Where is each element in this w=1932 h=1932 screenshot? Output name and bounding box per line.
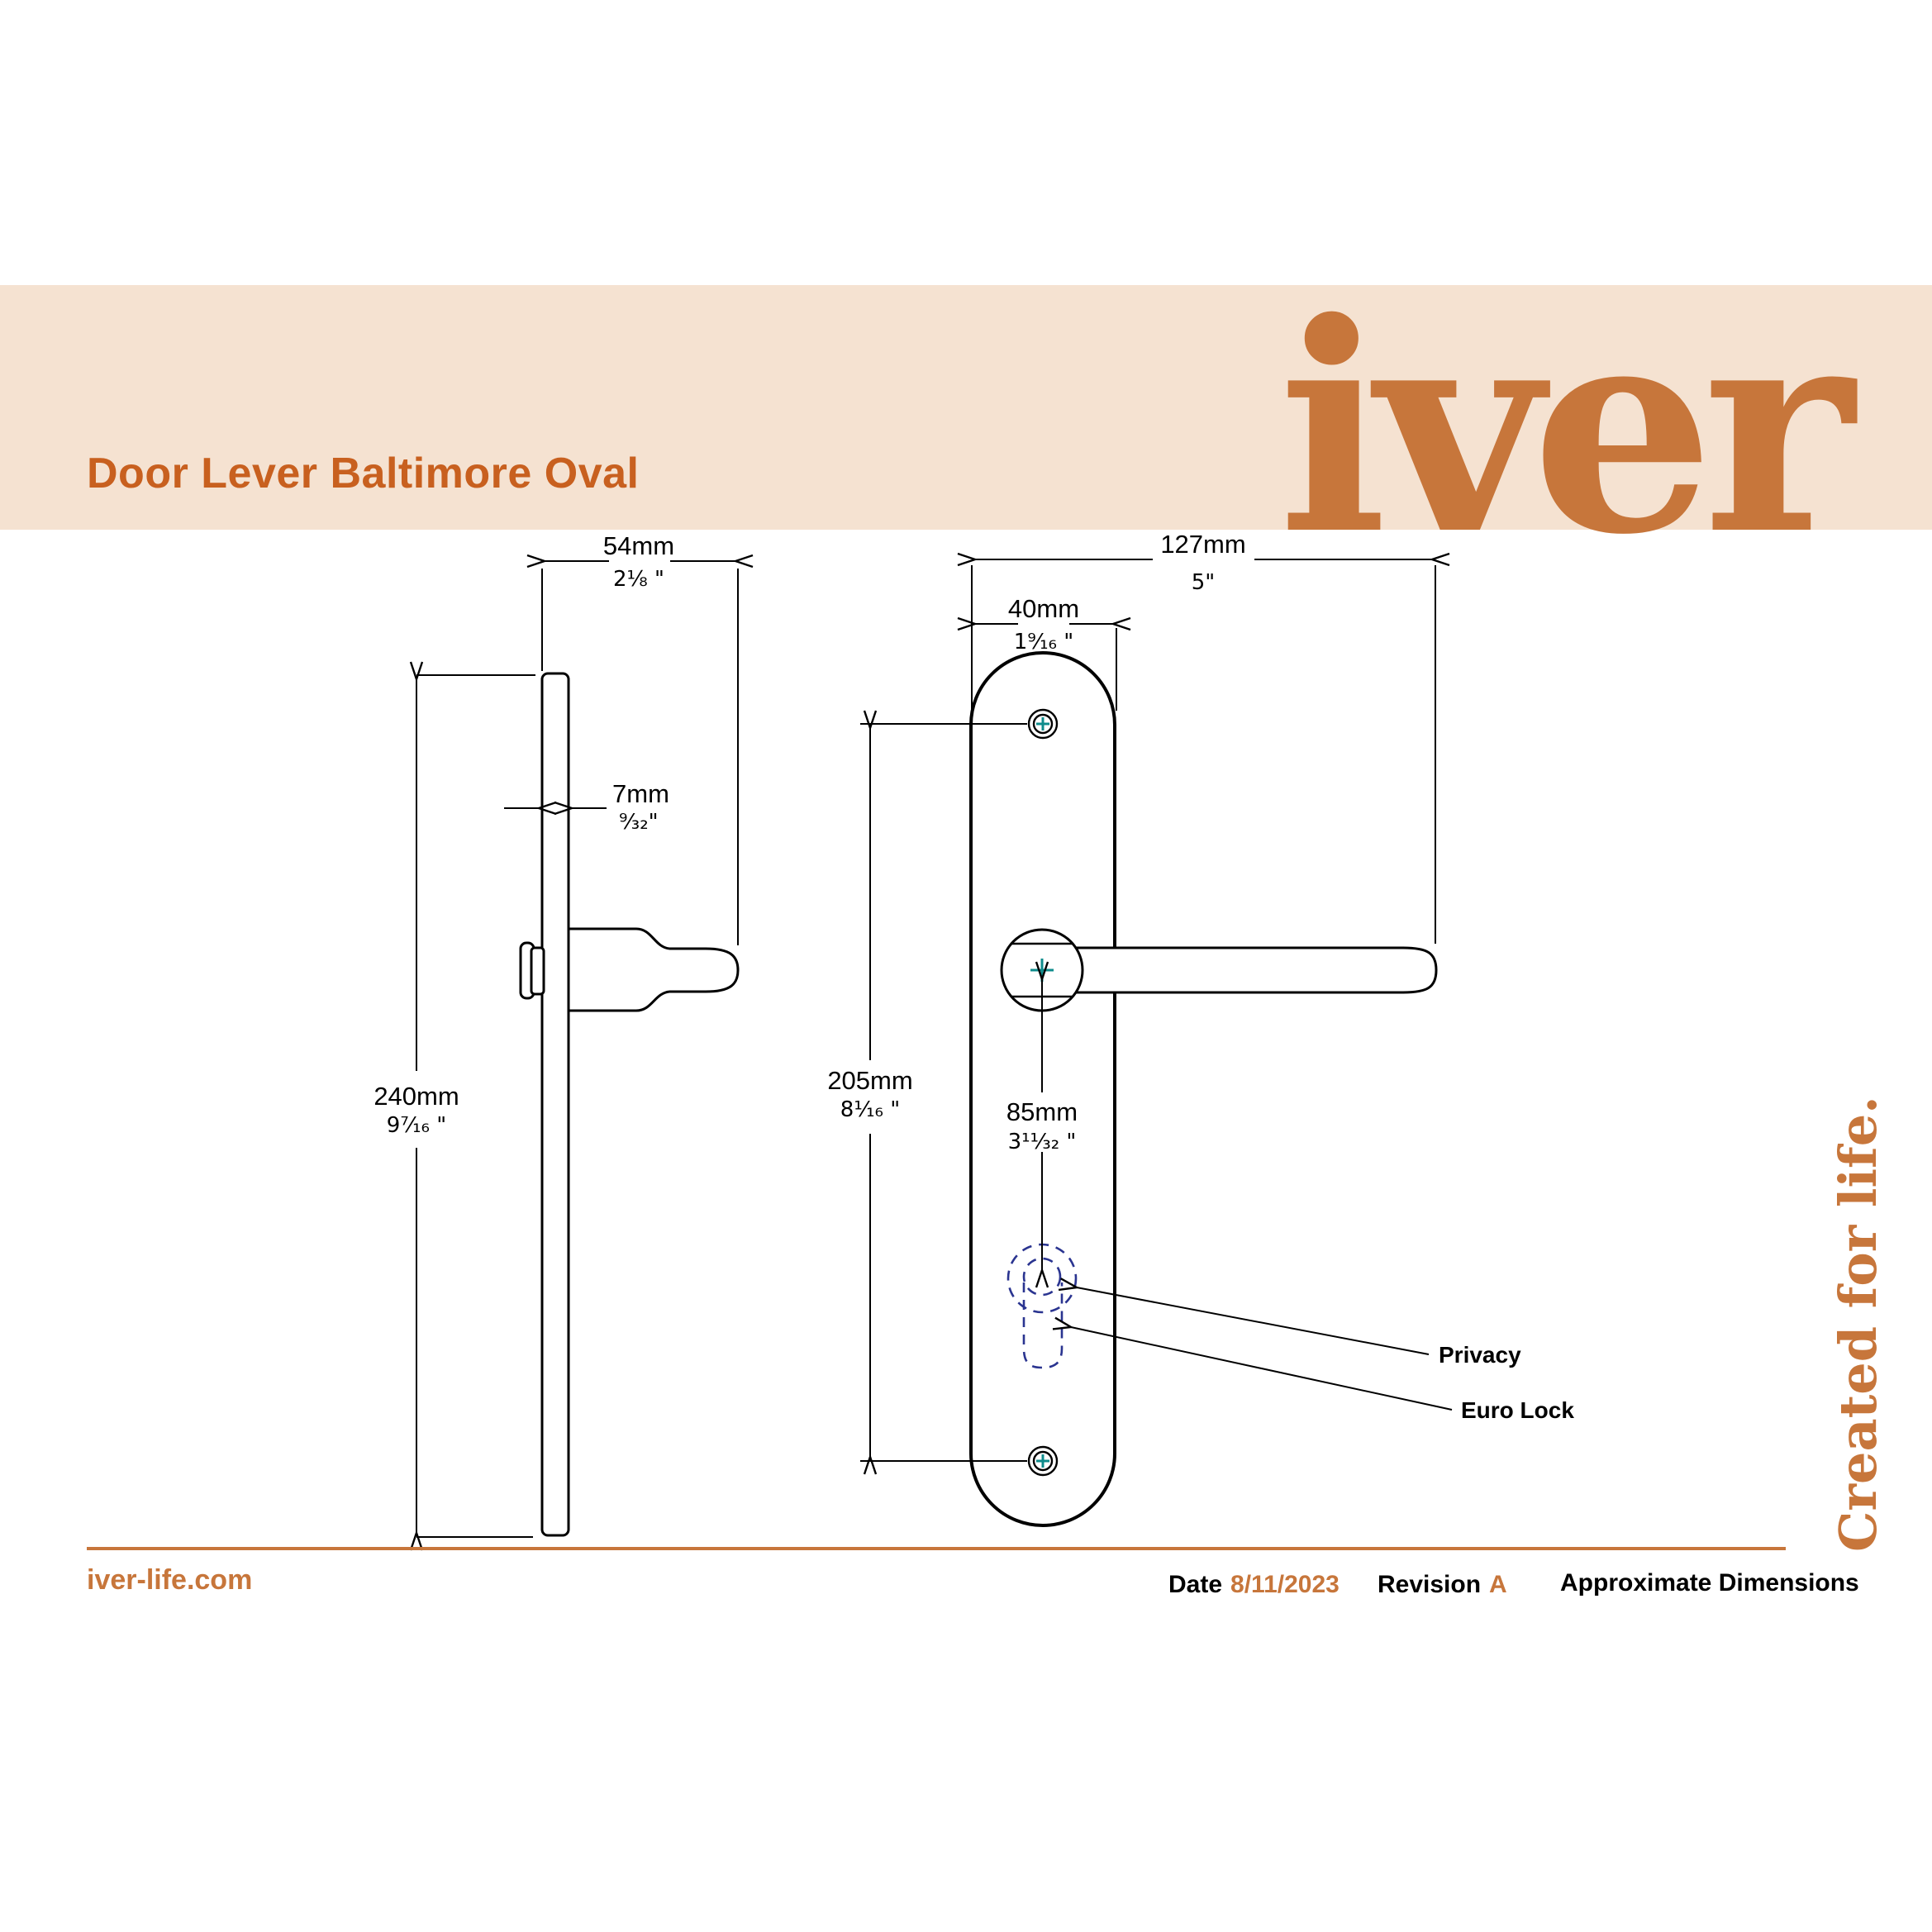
backplate-side [542, 673, 569, 1535]
dim-plate-thickness-mm: 7mm [612, 779, 669, 808]
technical-drawing: 54mm 2⅛ " 7mm ⁹⁄₃₂" 240mm 9⁷⁄₁₆ " [0, 0, 1932, 1932]
lever-bar [1042, 948, 1436, 992]
dim-overall-width-mm: 127mm [1160, 530, 1245, 559]
date-field: Date8/11/2023 [1168, 1571, 1340, 1599]
revision-field: RevisionA [1378, 1571, 1507, 1599]
dim-plate-height: 240mm 9⁷⁄₁₆ " [374, 675, 535, 1537]
spec-sheet-page: { "banner": { "title": "Door Lever Balti… [0, 0, 1932, 1932]
screw-top [1029, 710, 1057, 738]
privacy-label: Privacy [1439, 1342, 1521, 1368]
revision-value: A [1489, 1571, 1507, 1598]
dim-plate-width-mm: 40mm [1008, 594, 1079, 623]
dim-side-depth-mm: 54mm [603, 531, 674, 560]
lever-neck-top [569, 929, 669, 949]
footer-divider [87, 1547, 1786, 1550]
euro-lock-label: Euro Lock [1461, 1397, 1574, 1423]
lever-neck-bottom [569, 992, 669, 1011]
dim-side-depth: 54mm 2⅛ " [542, 531, 738, 945]
approximate-dimensions-note: Approximate Dimensions [1560, 1569, 1859, 1597]
dim-handle-to-keyhole-inch: 3¹¹⁄₃₂ " [1008, 1130, 1077, 1154]
screw-bottom [1029, 1447, 1057, 1475]
dim-plate-height-inch: 9⁷⁄₁₆ " [387, 1113, 446, 1138]
dim-plate-thickness-inch: ⁹⁄₃₂" [619, 810, 659, 835]
date-value: 8/11/2023 [1230, 1571, 1340, 1598]
revision-label: Revision [1378, 1571, 1481, 1598]
dim-plate-thickness: 7mm ⁹⁄₃₂" [504, 779, 669, 835]
dim-screw-centres-inch: 8¹⁄₁₆ " [840, 1097, 900, 1122]
website-link[interactable]: iver-life.com [87, 1564, 252, 1597]
callout-privacy: Privacy [1077, 1287, 1521, 1368]
dim-side-depth-inch: 2⅛ " [613, 567, 664, 592]
lever-grip-side [669, 949, 738, 992]
spindle-boss-inner [531, 948, 544, 994]
dim-plate-width-inch: 1⁹⁄₁₆ " [1014, 630, 1073, 654]
dim-screw-centres-mm: 205mm [827, 1066, 912, 1095]
dim-overall-width-inch: 5" [1192, 570, 1216, 595]
date-label: Date [1168, 1571, 1222, 1598]
brand-tagline: Created for life. [1828, 1154, 1889, 1552]
front-view [971, 653, 1436, 1525]
dim-handle-to-keyhole-mm: 85mm [1006, 1097, 1078, 1126]
dim-plate-height-mm: 240mm [374, 1082, 459, 1111]
